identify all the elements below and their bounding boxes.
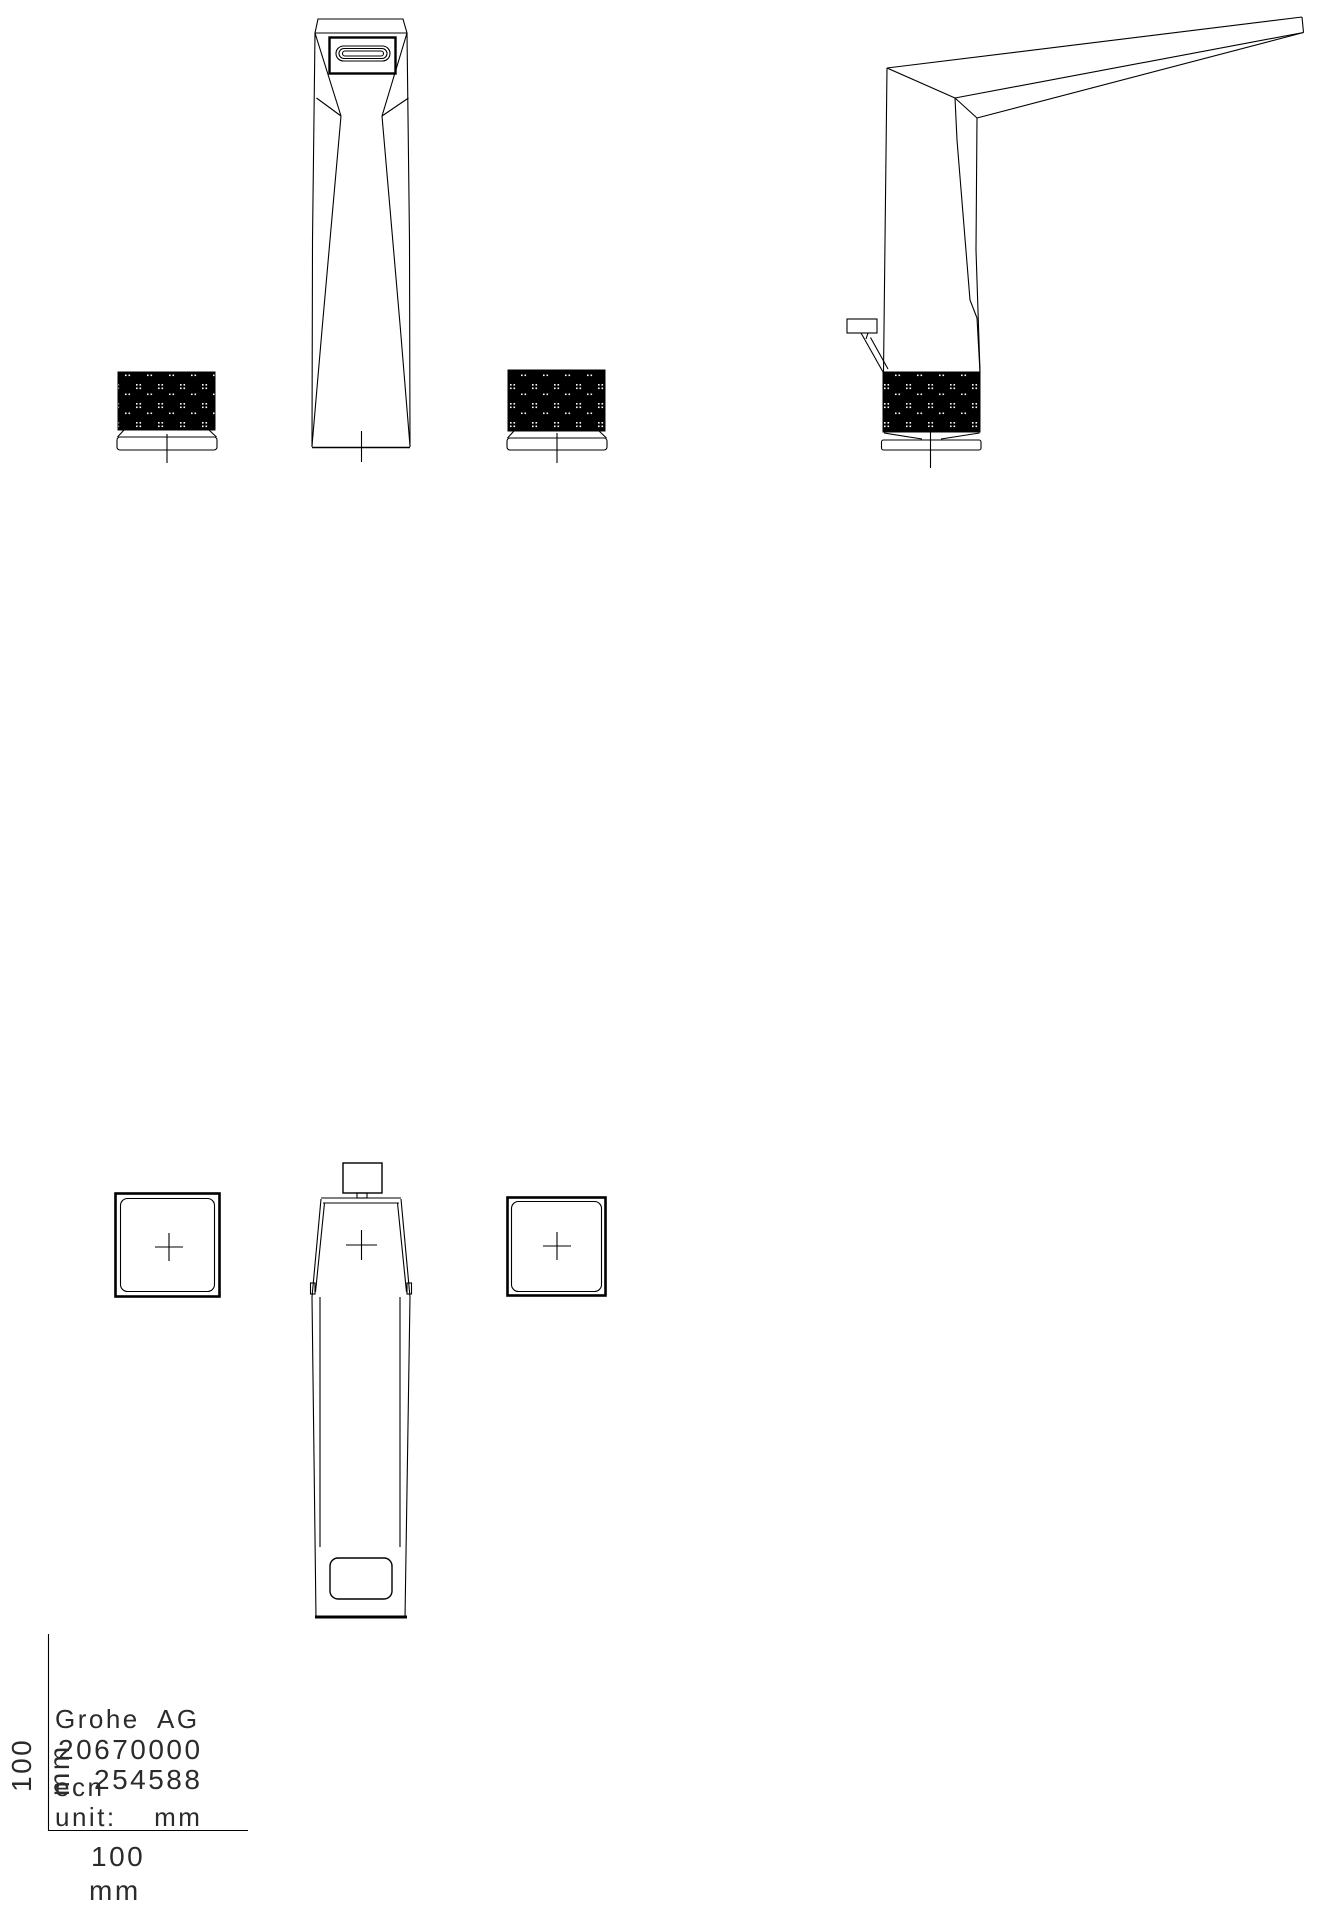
center-mark bbox=[346, 1230, 377, 1260]
center-mark bbox=[155, 1233, 183, 1261]
outlet-slot bbox=[330, 1558, 392, 1599]
ecn-number: 254588 bbox=[94, 1766, 202, 1794]
hatched-base bbox=[508, 370, 605, 431]
hatched-base bbox=[883, 372, 980, 432]
center-mark bbox=[543, 1232, 571, 1260]
x-scale-value: 100 bbox=[91, 1843, 145, 1871]
lever-stem bbox=[865, 338, 888, 373]
drawing-canvas bbox=[0, 0, 1317, 1920]
hatched-base bbox=[118, 372, 215, 430]
lever-knob bbox=[847, 319, 877, 333]
unit-note: unit: mm bbox=[55, 1804, 202, 1830]
company-name: Grohe AG bbox=[55, 1706, 200, 1732]
y-scale-unit: mm bbox=[46, 1744, 74, 1796]
y-scale-value: 100 bbox=[8, 1738, 36, 1792]
plan-view-handle-right bbox=[508, 1198, 606, 1296]
plan-view-handle-left bbox=[116, 1194, 220, 1297]
side-view-faucet bbox=[847, 17, 1304, 468]
aerator-knob bbox=[343, 1163, 382, 1193]
base-flange bbox=[882, 440, 982, 450]
part-number: 20670000 bbox=[58, 1736, 203, 1764]
front-view-handle-right bbox=[507, 370, 607, 463]
x-scale-unit: mm bbox=[89, 1877, 141, 1905]
plan-view-spout bbox=[311, 1163, 412, 1618]
front-view-spout bbox=[312, 19, 410, 462]
front-view-handle-left bbox=[117, 372, 217, 463]
